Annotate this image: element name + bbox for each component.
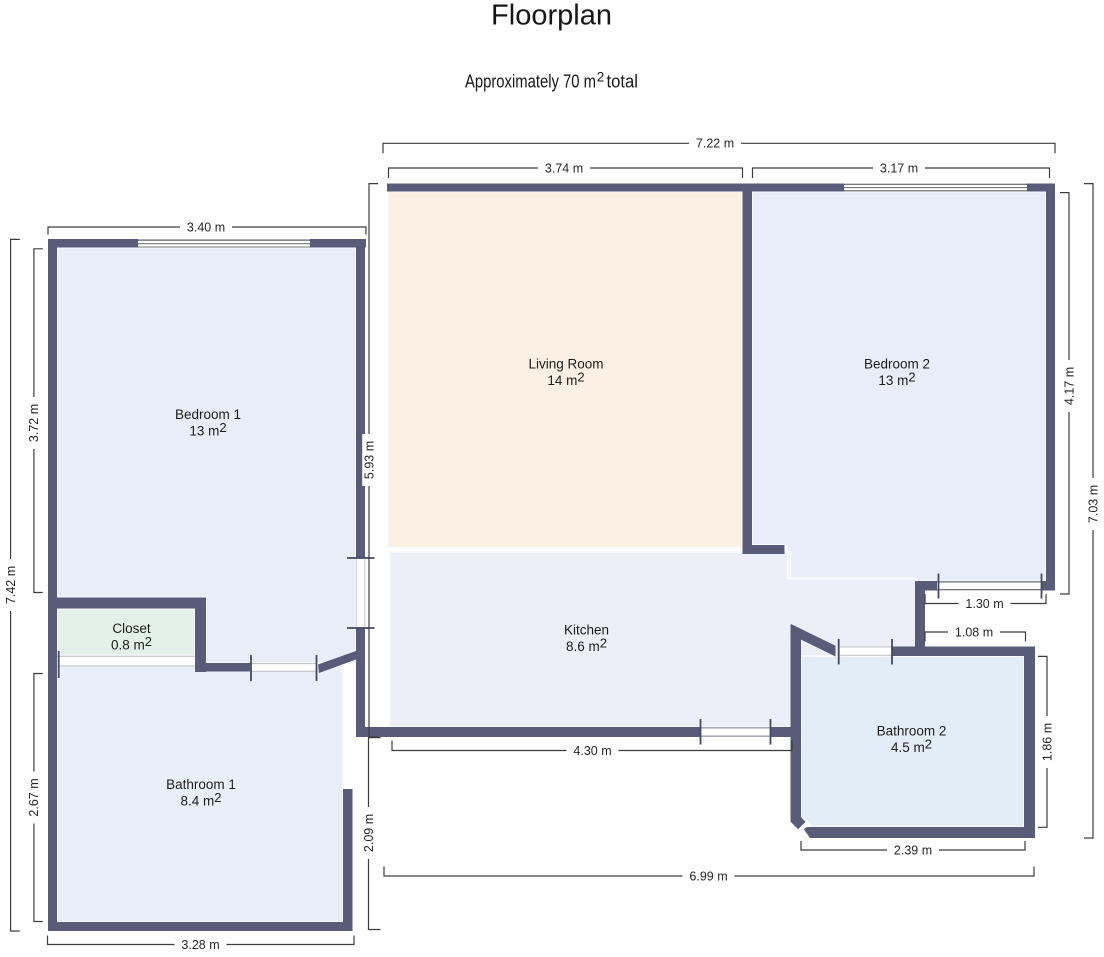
svg-text:3.28 m: 3.28 m	[181, 938, 219, 952]
svg-text:5.93 m: 5.93 m	[362, 441, 376, 479]
svg-text:4.17 m: 4.17 m	[1062, 367, 1076, 405]
svg-text:Bathroom 1: Bathroom 1	[166, 777, 236, 792]
svg-text:Bedroom 2: Bedroom 2	[864, 357, 930, 372]
svg-text:Floorplan: Floorplan	[491, 0, 612, 32]
svg-text:3.72 m: 3.72 m	[27, 404, 41, 442]
svg-text:1.08 m: 1.08 m	[955, 625, 993, 639]
svg-text:2.09 m: 2.09 m	[362, 814, 376, 852]
svg-text:4.30 m: 4.30 m	[573, 744, 611, 758]
svg-text:1.30 m: 1.30 m	[965, 597, 1003, 611]
svg-text:7.22 m: 7.22 m	[696, 137, 734, 151]
svg-text:Bedroom 1: Bedroom 1	[175, 407, 241, 422]
svg-text:2: 2	[597, 70, 605, 85]
svg-text:total: total	[607, 72, 639, 92]
svg-text:3.40 m: 3.40 m	[187, 220, 225, 234]
svg-text:3.74 m: 3.74 m	[545, 161, 583, 175]
svg-text:Living Room: Living Room	[528, 357, 603, 372]
svg-text:7.03 m: 7.03 m	[1086, 485, 1100, 523]
svg-text:Approximately 70 m: Approximately 70 m	[465, 72, 596, 92]
svg-text:6.99 m: 6.99 m	[689, 869, 727, 883]
svg-text:Bathroom 2: Bathroom 2	[877, 724, 947, 739]
svg-text:2.67 m: 2.67 m	[27, 778, 41, 816]
svg-text:2.39 m: 2.39 m	[894, 843, 932, 857]
svg-text:3.17 m: 3.17 m	[880, 161, 918, 175]
svg-text:7.42 m: 7.42 m	[4, 566, 18, 604]
svg-text:1.86 m: 1.86 m	[1040, 723, 1054, 761]
